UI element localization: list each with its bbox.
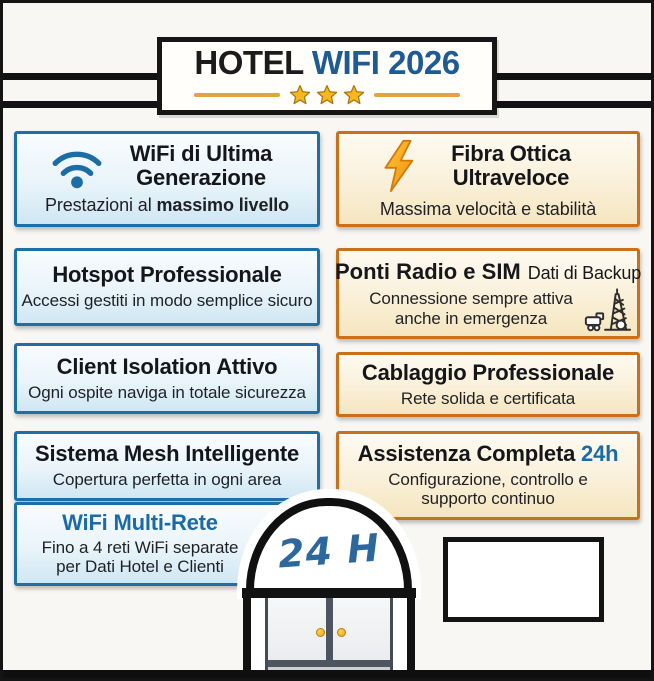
- door-knob: [316, 628, 325, 637]
- card-subtitle: Prestazioni al massimo livello: [45, 195, 289, 216]
- door-24h-label: 24 H: [277, 525, 382, 576]
- subtitle-prefix: Prestazioni al: [45, 195, 157, 215]
- card-subtitle: Accessi gestiti in modo semplice sicuro: [22, 291, 313, 311]
- ground-line: [3, 670, 651, 678]
- door-crossbar: [242, 588, 416, 598]
- gold-line-left: [194, 93, 280, 97]
- door-side-panel: [393, 596, 407, 673]
- facade-line: [3, 73, 160, 80]
- card-fibra-ottica: Fibra Ottica Ultraveloce Massima velocit…: [336, 131, 640, 227]
- stars: [289, 84, 365, 106]
- facade-line: [494, 101, 651, 108]
- title-bold: Ponti Radio e SIM: [335, 259, 521, 285]
- facade-line: [3, 101, 160, 108]
- card-title: Assistenza Completa 24h: [358, 442, 619, 466]
- card-title: Cablaggio Professionale: [362, 361, 614, 385]
- card-client-isolation: Client Isolation Attivo Ogni ospite navi…: [14, 343, 320, 414]
- door-post: [243, 596, 251, 673]
- card-hotspot: Hotspot Professionale Accessi gestiti in…: [14, 248, 320, 326]
- card-subtitle: Copertura perfetta in ogni area: [53, 470, 281, 490]
- door-side-panel: [251, 596, 265, 673]
- lightning-icon: [380, 138, 416, 194]
- star-icon: [343, 84, 365, 106]
- card-mesh: Sistema Mesh Intelligente Copertura perf…: [14, 431, 320, 501]
- title-hotel: HOTEL: [194, 44, 303, 81]
- card-subtitle: Rete solida e certificata: [401, 389, 575, 409]
- title-wifi: WIFI 2026: [312, 44, 460, 81]
- card-title: WiFi Multi-Rete: [62, 511, 218, 535]
- card-ponti-radio: Ponti Radio e SIM Dati di Backup Conness…: [336, 248, 640, 339]
- card-title: Hotspot Professionale: [52, 263, 281, 287]
- card-title: Ponti Radio e SIM Dati di Backup: [335, 259, 641, 285]
- title-prefix: Assistenza Completa: [358, 441, 581, 466]
- gold-line-right: [374, 93, 460, 97]
- door-threshold: [268, 660, 390, 667]
- door: [265, 596, 393, 673]
- header-sign: HOTEL WIFI 2026: [157, 37, 497, 115]
- radio-tower-icon: [582, 288, 632, 333]
- card-subtitle: Massima velocità e stabilità: [380, 199, 596, 220]
- card-wifi-generation: WiFi di Ultima Generazione Prestazioni a…: [14, 131, 320, 227]
- card-assistenza: Assistenza Completa 24h Configurazione, …: [336, 431, 640, 520]
- door-knob: [337, 628, 346, 637]
- hotel-wifi-poster: HOTEL WIFI 2026 WiFi di Ultima Generazio…: [0, 0, 654, 681]
- page-title: HOTEL WIFI 2026: [194, 46, 459, 79]
- card-title: Sistema Mesh Intelligente: [35, 442, 299, 466]
- card-title: Client Isolation Attivo: [57, 355, 278, 379]
- card-title: WiFi di Ultima Generazione: [116, 142, 286, 190]
- card-subtitle: Ogni ospite naviga in totale sicurezza: [28, 383, 306, 403]
- title-24h: 24h: [581, 441, 618, 466]
- door-post: [407, 596, 415, 673]
- card-subtitle: Configurazione, controllo e supporto con…: [371, 470, 606, 509]
- subtitle-bold: massimo livello: [157, 195, 290, 215]
- facade-line: [494, 73, 651, 80]
- card-cablaggio: Cablaggio Professionale Rete solida e ce…: [336, 352, 640, 417]
- card-subtitle: Fino a 4 reti WiFi separate per Dati Hot…: [33, 538, 248, 577]
- title-suffix: Dati di Backup: [528, 263, 641, 284]
- card-title: Fibra Ottica Ultraveloce: [426, 142, 596, 190]
- wifi-icon: [48, 143, 106, 189]
- star-icon: [316, 84, 338, 106]
- star-icon: [289, 84, 311, 106]
- blank-sign: [443, 537, 604, 622]
- stars-row: [194, 84, 460, 106]
